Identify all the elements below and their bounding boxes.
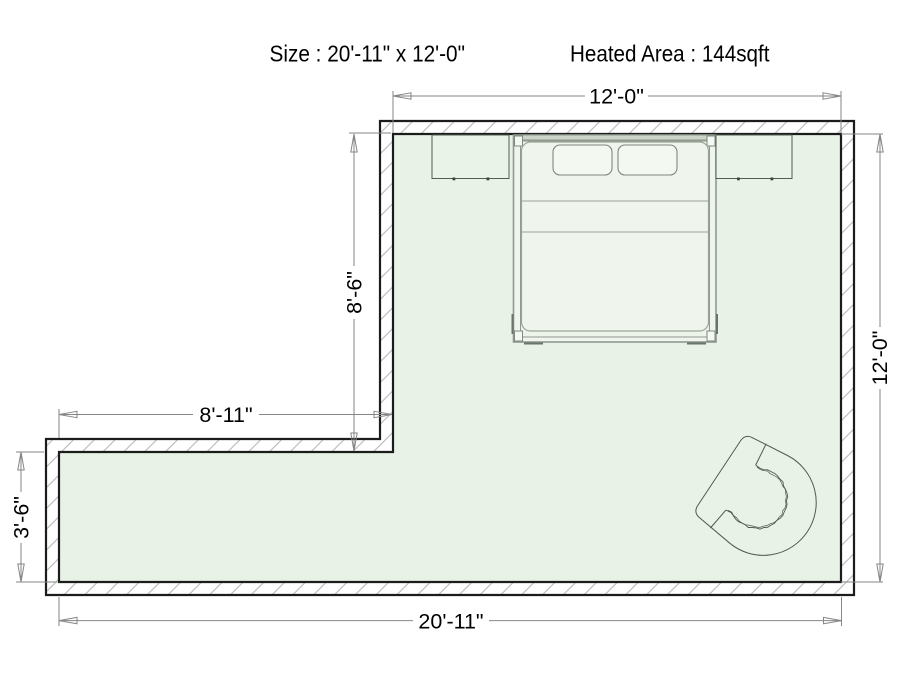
svg-text:3'-6": 3'-6" [10,496,34,539]
svg-text:Heated Area : 144sqft: Heated Area : 144sqft [570,41,770,67]
svg-text:12'-0": 12'-0" [868,331,892,386]
svg-text:20'-11": 20'-11" [418,609,483,633]
svg-text:8'-6": 8'-6" [343,271,367,314]
svg-text:8'-11": 8'-11" [199,403,252,427]
svg-text:12'-0": 12'-0" [589,85,644,109]
svg-text:Size : 20'-11" x 12'-0": Size : 20'-11" x 12'-0" [270,41,466,67]
